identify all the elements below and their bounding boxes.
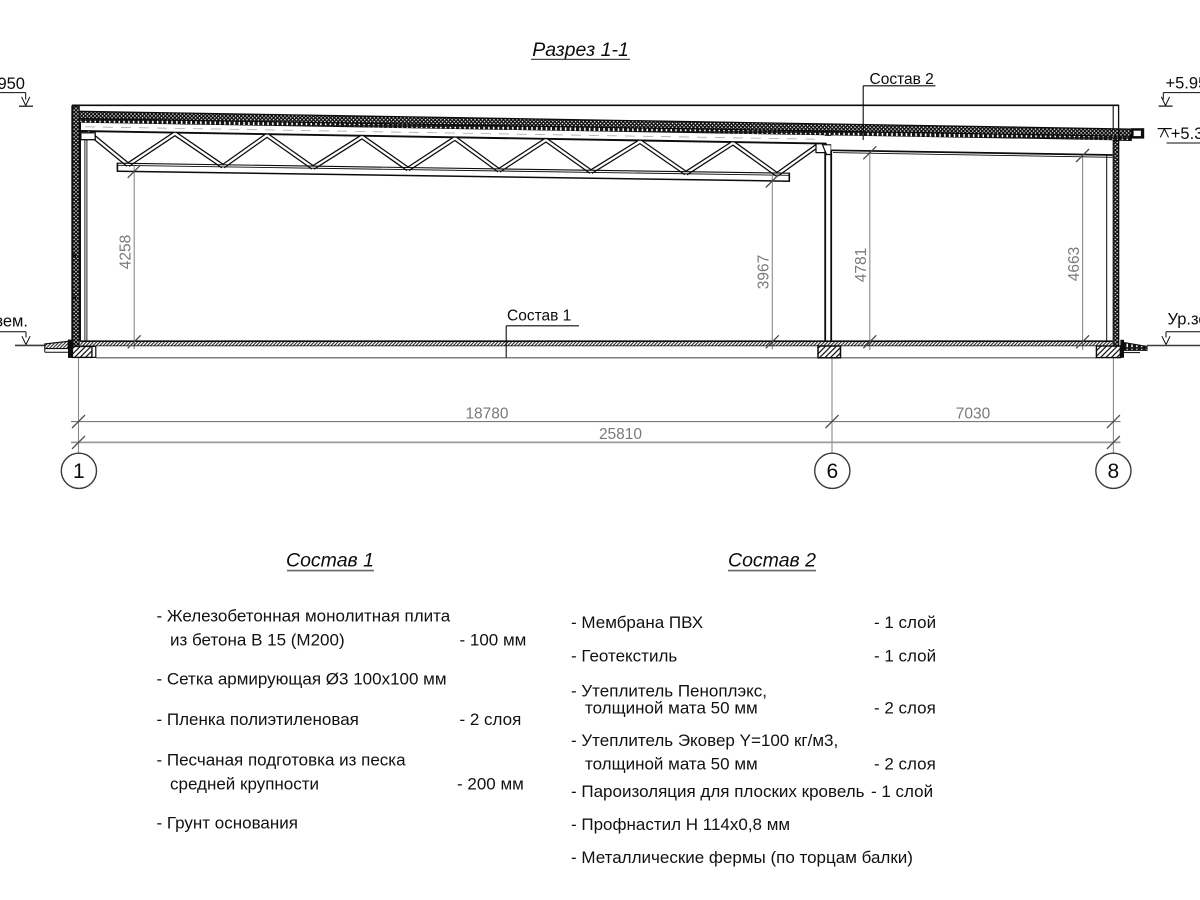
svg-text:Разрез 1-1: Разрез 1-1 bbox=[532, 39, 629, 61]
svg-text:- Утеплитель Эковер Y=100 кг/м: - Утеплитель Эковер Y=100 кг/м3, bbox=[571, 731, 838, 750]
svg-text:7030: 7030 bbox=[956, 405, 991, 422]
svg-text:- Пароизоляция для плоских кро: - Пароизоляция для плоских кровель bbox=[571, 782, 865, 801]
svg-text:+5.950: +5.950 bbox=[1166, 75, 1200, 93]
svg-text:6: 6 bbox=[826, 460, 838, 483]
svg-text:- 2 слоя: - 2 слоя bbox=[460, 710, 522, 729]
svg-text:- Песчаная подготовка из песка: - Песчаная подготовка из песка bbox=[157, 751, 407, 770]
svg-text:18780: 18780 bbox=[465, 405, 508, 422]
svg-text:+5.950: +5.950 bbox=[0, 75, 25, 93]
svg-text:- Геотекстиль: - Геотекстиль bbox=[571, 647, 677, 666]
svg-text:4781: 4781 bbox=[853, 248, 870, 282]
svg-text:Состав 1: Состав 1 bbox=[507, 308, 571, 325]
svg-text:- Металлические фермы (по торц: - Металлические фермы (по торцам балки) bbox=[571, 848, 913, 867]
svg-text:- Сетка армирующая Ø3 100х100: - Сетка армирующая Ø3 100х100 мм bbox=[157, 670, 447, 689]
svg-text:толщиной мата 50 мм: толщиной мата 50 мм bbox=[585, 755, 758, 774]
svg-text:толщиной мата 50 мм: толщиной мата 50 мм bbox=[585, 699, 758, 718]
svg-text:Ур.зем.: Ур.зем. bbox=[1168, 311, 1200, 329]
svg-text:из бетона В 15 (М200): из бетона В 15 (М200) bbox=[170, 630, 345, 649]
svg-text:- 1 слой: - 1 слой bbox=[874, 613, 936, 632]
svg-text:- Железобетонная монолитная п: - Железобетонная монолитная плита bbox=[157, 606, 451, 625]
svg-text:+5.385: +5.385 bbox=[1171, 125, 1200, 143]
svg-text:8: 8 bbox=[1108, 460, 1120, 483]
svg-text:Ур.зем.: Ур.зем. bbox=[0, 313, 28, 331]
svg-text:Состав 2: Состав 2 bbox=[728, 550, 816, 572]
svg-text:- Профнастил Н 114х0,8 мм: - Профнастил Н 114х0,8 мм bbox=[571, 815, 790, 834]
svg-text:- 1 слой: - 1 слой bbox=[871, 782, 933, 801]
svg-text:25810: 25810 bbox=[599, 426, 642, 443]
svg-text:1: 1 bbox=[73, 460, 85, 483]
svg-text:4663: 4663 bbox=[1066, 247, 1083, 281]
svg-text:4258: 4258 bbox=[118, 235, 135, 269]
svg-text:- 1 слой: - 1 слой bbox=[874, 647, 936, 666]
svg-text:- 2 слоя: - 2 слоя bbox=[874, 755, 936, 774]
svg-text:Состав 1: Состав 1 bbox=[286, 550, 374, 572]
svg-text:- 200 мм: - 200 мм bbox=[457, 775, 524, 794]
svg-text:- Грунт основания: - Грунт основания bbox=[157, 813, 298, 832]
svg-text:- Мембрана ПВХ: - Мембрана ПВХ bbox=[571, 613, 703, 632]
svg-text:3967: 3967 bbox=[756, 255, 773, 289]
svg-text:средней крупности: средней крупности bbox=[170, 775, 319, 794]
svg-text:- 100 мм: - 100 мм bbox=[460, 630, 527, 649]
svg-text:- Пленка полиэтиленовая: - Пленка полиэтиленовая bbox=[157, 710, 359, 729]
svg-text:- 2 слоя: - 2 слоя bbox=[874, 699, 936, 718]
